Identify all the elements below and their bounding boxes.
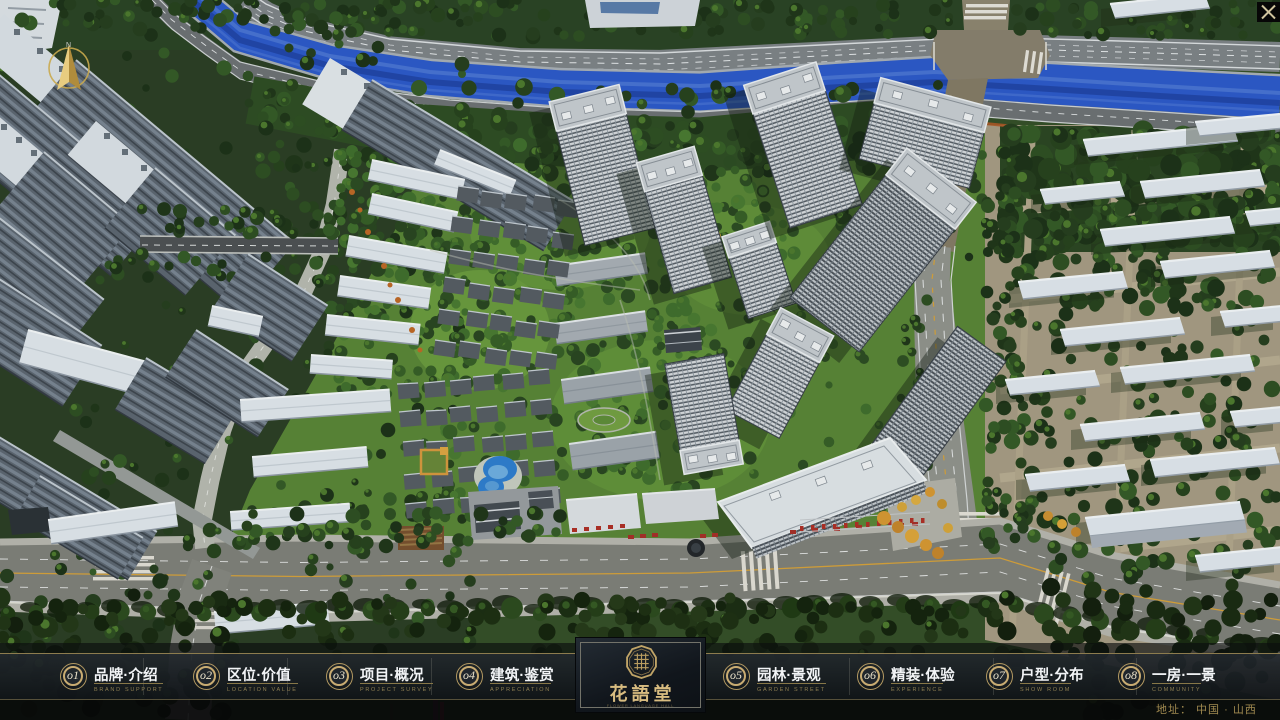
svg-text:N: N [66, 42, 71, 49]
